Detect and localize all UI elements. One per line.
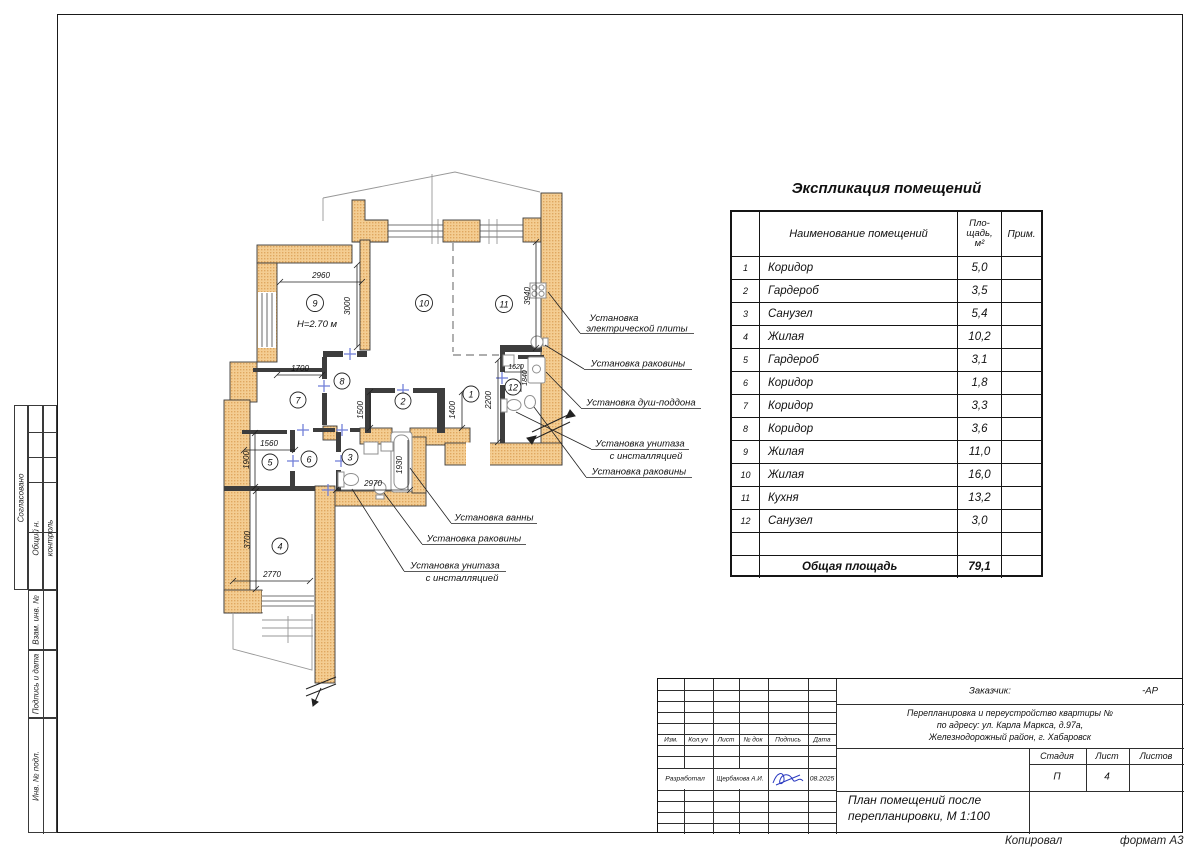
dim-label: 1500	[356, 401, 365, 419]
svg-text:9: 9	[312, 299, 317, 309]
ceiling-height-label: Н=2.70 м	[297, 319, 338, 330]
callout-label: Установка раковины	[591, 467, 686, 478]
sheet-label: Лист	[1095, 751, 1118, 761]
header-num	[732, 212, 760, 257]
room-badge: 5	[262, 454, 278, 470]
dim-label: 3000	[343, 297, 352, 315]
room-badge: 2	[395, 393, 411, 409]
header-area: Пло-щадь,м²	[958, 212, 1002, 257]
callout-label: Установка душ-поддона	[585, 398, 695, 409]
table-row: 11Кухня13,2	[732, 487, 1041, 510]
dim-label: 2200	[484, 391, 493, 410]
sign-date: 08.2025	[810, 776, 835, 783]
toilet-3-icon	[338, 472, 359, 487]
door-gap	[466, 443, 490, 466]
svg-text:2: 2	[399, 397, 405, 407]
total-area: 79,1	[958, 556, 1002, 578]
col-list: Лист	[718, 736, 735, 743]
dim-label: 2970	[363, 479, 382, 488]
room-badge: 11	[496, 296, 513, 313]
address-line: по адресу: ул. Карла Маркса, д.97а,	[937, 720, 1083, 730]
header-note: Прим.	[1002, 212, 1041, 257]
table-row: 10Жилая16,0	[732, 464, 1041, 487]
sheet-value: 4	[1104, 772, 1110, 783]
callout-label: электрической плиты	[586, 324, 687, 335]
table-title: Экспликация помещений	[730, 180, 1043, 197]
format-label: формат А3	[1120, 835, 1184, 847]
col-podpis: Подпись	[775, 736, 801, 743]
address-line: Перепланировка и переустройство квартиры…	[907, 708, 1113, 718]
table-row: 9Жилая11,0	[732, 441, 1041, 464]
svg-text:3: 3	[347, 453, 352, 463]
dim-label: 3940	[523, 287, 532, 305]
col-dok: № док	[743, 736, 762, 743]
svg-text:11: 11	[499, 300, 508, 310]
dim-label: 3700	[243, 531, 252, 549]
dim-label: 2770	[262, 570, 281, 579]
col-izm: Изм.	[664, 736, 678, 743]
customer-label: Заказчик:	[969, 686, 1011, 697]
table-header-row: Наименование помещений Пло-щадь,м² Прим.	[732, 212, 1041, 257]
kitchen-sink-icon	[531, 336, 548, 348]
table-row: 7Коридор3,3	[732, 395, 1041, 418]
callout-label: с инсталляцией	[426, 573, 499, 584]
cabinet-icon	[381, 442, 393, 451]
svg-text:4: 4	[277, 542, 282, 552]
stage-value: П	[1053, 772, 1060, 783]
signature	[770, 769, 806, 789]
table-row: 3Санузел5,4	[732, 303, 1041, 326]
sink-12-icon	[525, 396, 536, 409]
dim-label: 1930	[395, 456, 404, 474]
washer-icon	[364, 442, 378, 454]
cross-icon	[318, 380, 330, 392]
callout-label: Установка унитаза	[594, 439, 684, 450]
table-row: 12Санузел3,0	[732, 510, 1041, 533]
callout-label: с инсталляцией	[610, 451, 683, 462]
col-koluch: Кол.уч	[688, 736, 707, 743]
room-badge: 8	[334, 373, 350, 389]
table-row: 6Коридор1,8	[732, 372, 1041, 395]
dim-label: 1560	[260, 439, 278, 448]
header-name: Наименование помещений	[760, 212, 958, 257]
address-line: Железнодорожный район, г. Хабаровск	[929, 732, 1091, 742]
room-badge: 9	[307, 295, 324, 312]
svg-text:1: 1	[468, 390, 473, 400]
cross-icon	[297, 424, 309, 436]
developed-label: Разработал	[665, 776, 705, 783]
callout-label: Установка унитаза	[409, 561, 499, 572]
stage-label: Стадия	[1040, 751, 1074, 761]
room-badge: 10	[416, 295, 433, 312]
dim-label: 1400	[448, 401, 457, 419]
windows	[258, 219, 523, 612]
developer-name: Щербакова А.И.	[716, 776, 763, 783]
doc-code: -АР	[1142, 686, 1158, 697]
dim-label: 1620	[508, 364, 524, 371]
balcony-outline	[233, 614, 313, 670]
copied-label: Копировал	[1005, 835, 1062, 847]
room-badge: 3	[342, 449, 358, 465]
drawing-sheet: { "sidebar": { "agreed": "Согласовано", …	[0, 0, 1200, 849]
table-row: 2Гардероб3,5	[732, 280, 1041, 303]
svg-text:12: 12	[508, 383, 518, 393]
room-badge: 12	[505, 379, 521, 395]
room-badge: 4	[272, 538, 288, 554]
shower-tray-icon	[528, 357, 545, 383]
dim-label: 1700	[291, 364, 309, 373]
table-row: 4Жилая10,2	[732, 326, 1041, 349]
title-block: Изм. Кол.уч Лист № док Подпись Дата Разр…	[657, 678, 1183, 833]
doc-title-line: План помещений после	[848, 793, 981, 807]
doc-title-line: перепланировки, М 1:100	[848, 809, 990, 823]
room-badge: 7	[290, 392, 306, 408]
dim-label: 1900	[242, 451, 251, 469]
stove-icon	[530, 283, 546, 298]
sheets-label: Листов	[1140, 751, 1173, 761]
total-label: Общая площадь	[760, 556, 958, 578]
table-row: 8Коридор3,6	[732, 418, 1041, 441]
cross-icon	[287, 455, 299, 467]
col-data: Дата	[813, 736, 830, 743]
callout-label: Установка ванны	[453, 513, 533, 524]
dashed-boundary	[453, 243, 499, 355]
table-total-row: Общая площадь 79,1	[732, 556, 1041, 578]
toilet-12-icon	[501, 399, 521, 412]
svg-text:8: 8	[339, 377, 344, 387]
dim-label: 2960	[311, 271, 330, 280]
room-badge: 6	[301, 451, 317, 467]
callout-label: Установка раковины	[590, 359, 685, 370]
room-badge: 1	[463, 386, 479, 402]
callout-label: Установка раковины	[426, 534, 521, 545]
svg-text:6: 6	[306, 455, 311, 465]
table-row: 5Гардероб3,1	[732, 349, 1041, 372]
table-empty-row	[732, 533, 1041, 556]
svg-text:10: 10	[419, 299, 429, 309]
callout-label: Установка	[589, 313, 639, 324]
table-row: 1Коридор5,0	[732, 257, 1041, 280]
explication-table: Наименование помещений Пло-щадь,м² Прим.…	[730, 210, 1043, 577]
dim-label: 1840	[522, 370, 529, 386]
